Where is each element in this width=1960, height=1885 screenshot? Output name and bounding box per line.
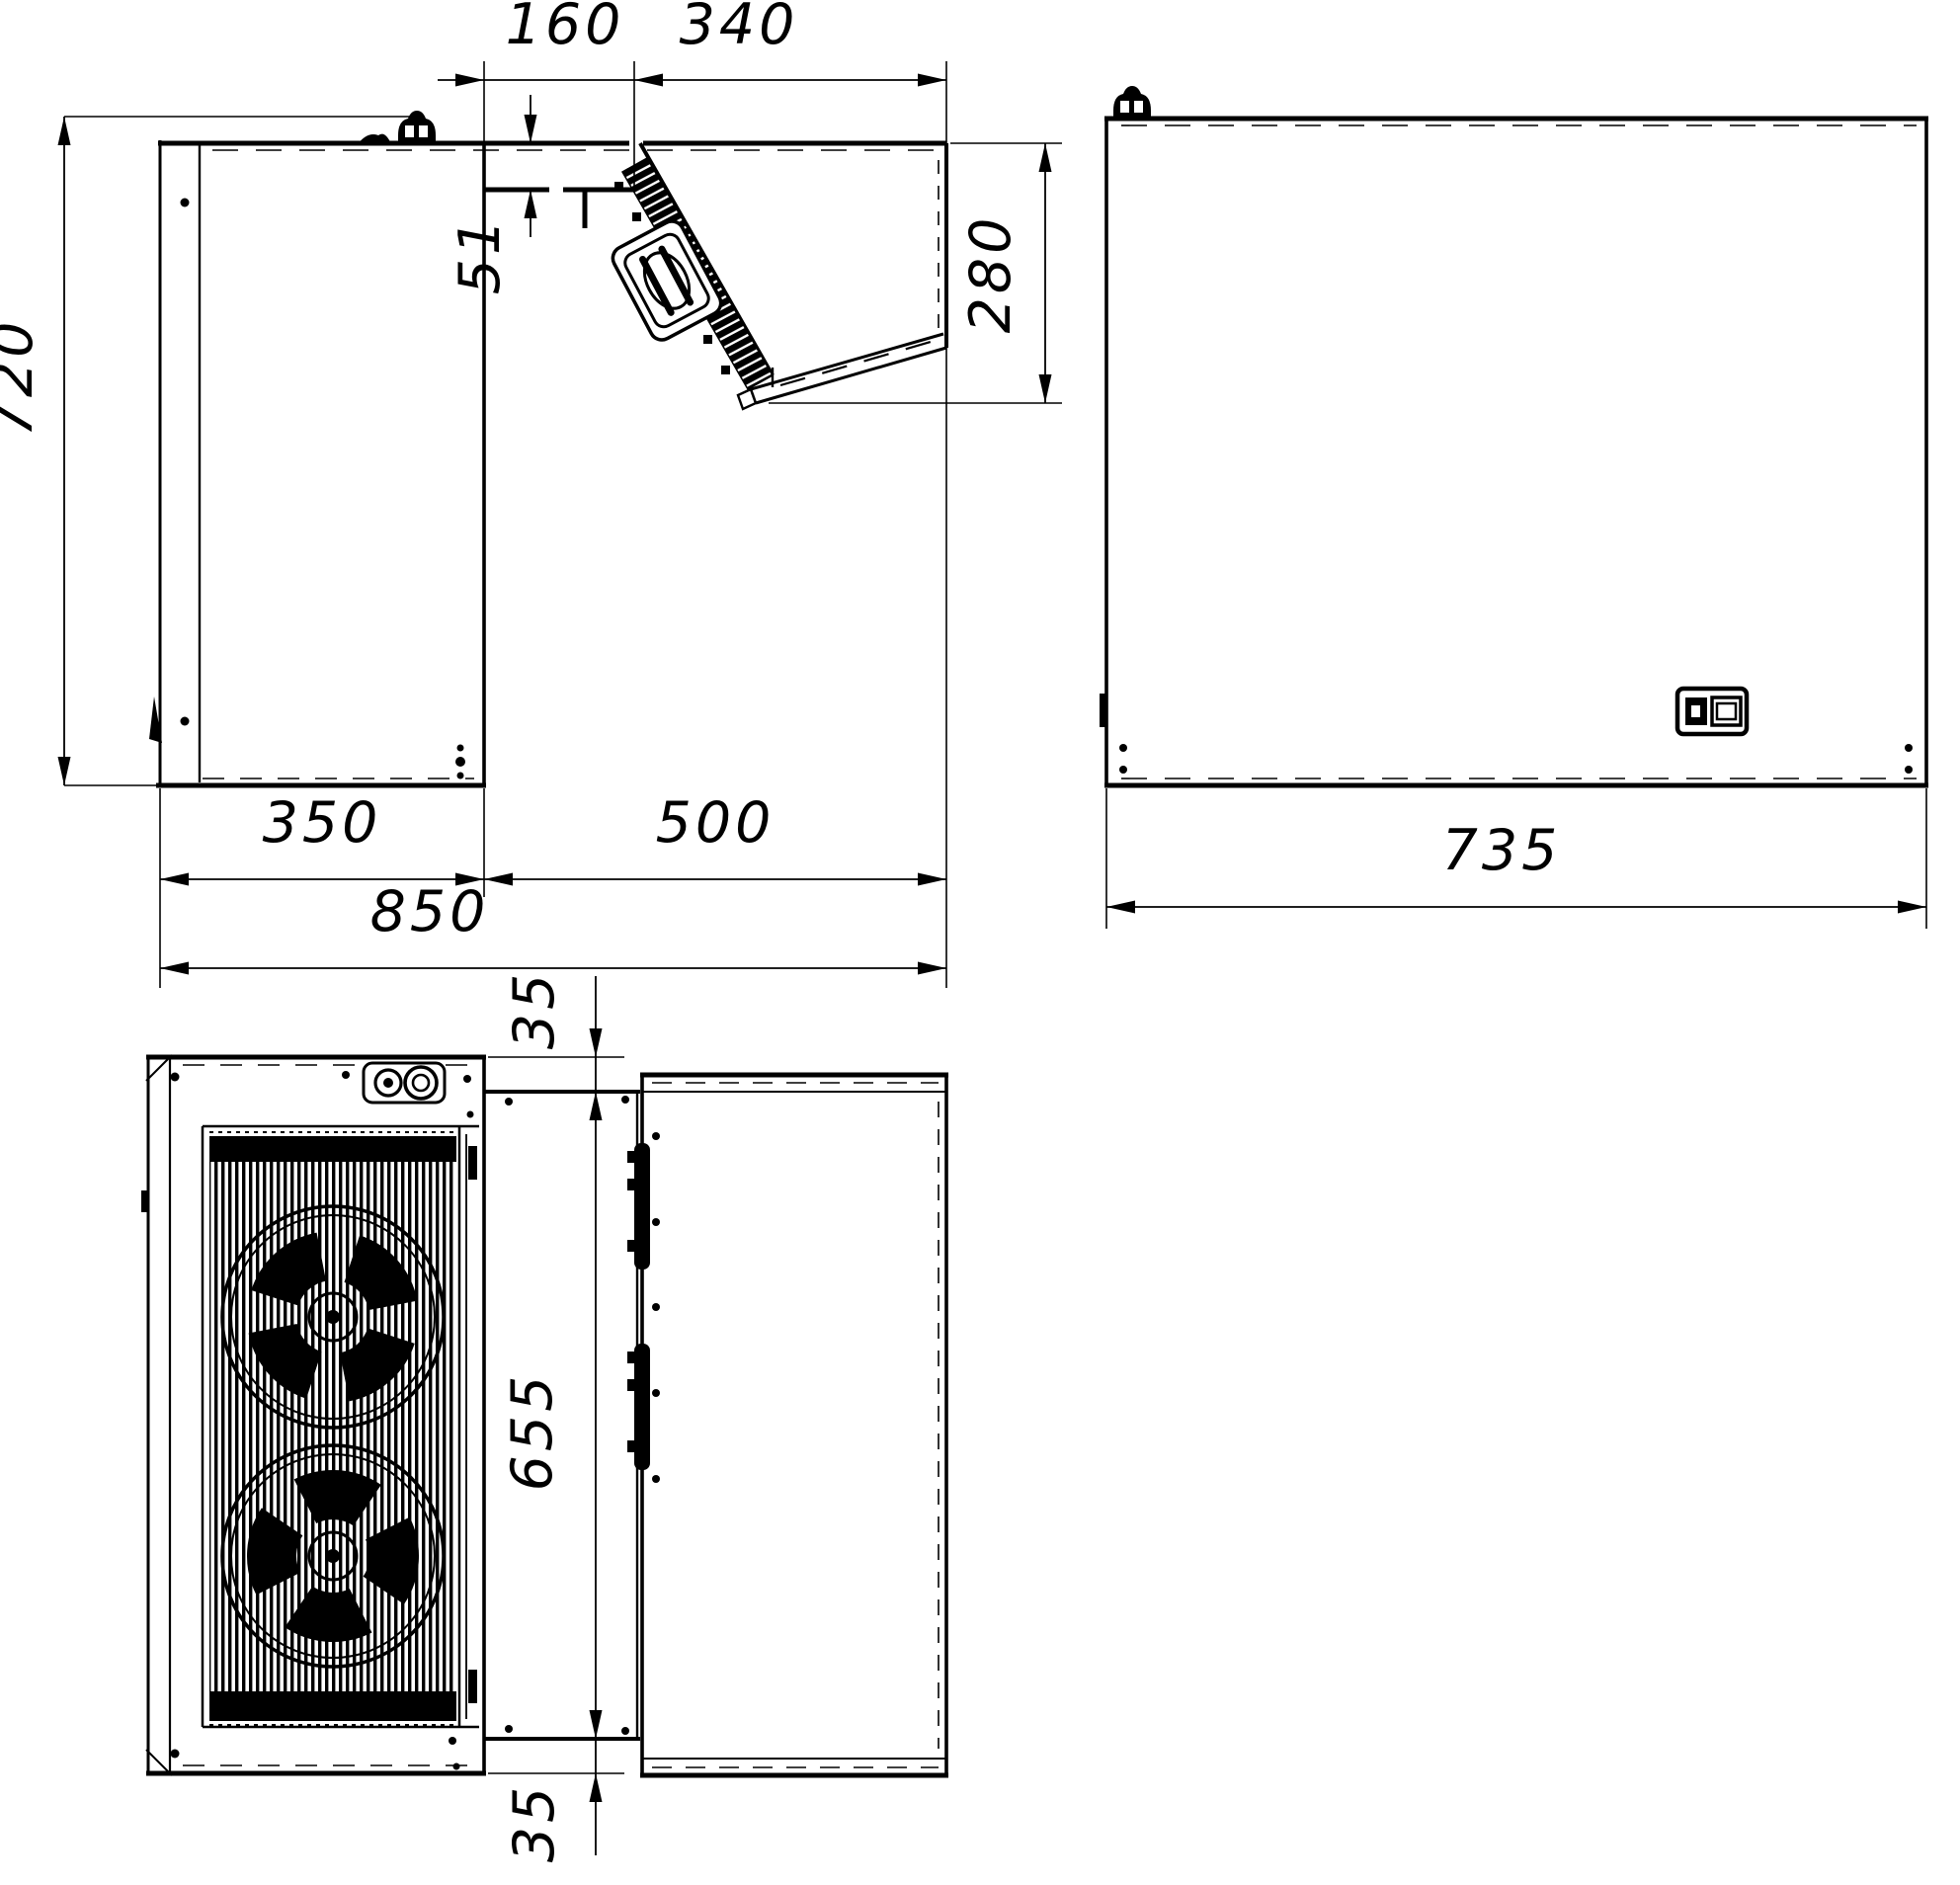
dim-indoor-340: 340	[634, 0, 946, 143]
rivet-dot	[652, 1132, 660, 1140]
screw-dot	[621, 1096, 629, 1104]
dim-label-735: 735	[1442, 818, 1562, 883]
hinge-tab	[627, 1143, 650, 1270]
rivet-dot	[652, 1475, 660, 1483]
service-valve-icon-front	[1113, 86, 1151, 120]
dim-label-340: 340	[680, 0, 799, 57]
screw-dot	[505, 1098, 513, 1106]
screw-dot	[455, 757, 465, 767]
drawing-sheet: 720	[0, 0, 1960, 1885]
controller-display	[1677, 689, 1747, 734]
screw-dot	[181, 717, 190, 726]
dim-recess-160: 160	[438, 0, 634, 190]
screw-dot	[457, 773, 464, 779]
front-screw-dots	[1119, 744, 1913, 774]
dim-height-720: 720	[0, 117, 415, 785]
screw-dot	[181, 199, 190, 207]
screw-dot	[467, 1111, 474, 1118]
dim-label-655: 655	[500, 1372, 565, 1492]
latch	[468, 1146, 477, 1180]
condenser-grille	[209, 1136, 456, 1721]
dim-label-350: 350	[263, 790, 382, 856]
dim-label-35-bottom: 35	[502, 1783, 567, 1863]
side-view: 720	[0, 0, 1062, 988]
evaporator-section	[609, 143, 946, 409]
dim-clearance-35-bottom: 35	[488, 1739, 624, 1862]
rivet-dot	[652, 1218, 660, 1226]
dim-label-51: 51	[448, 215, 513, 295]
drawing-canvas: 720	[0, 0, 1960, 1885]
latch	[468, 1670, 477, 1703]
fan-shroud-icon	[609, 217, 725, 344]
grommet-icon	[358, 134, 391, 144]
dim-label-280: 280	[958, 214, 1023, 334]
rivet-dot	[652, 1303, 660, 1311]
dim-width-735: 735	[1106, 788, 1926, 929]
screw-dot	[621, 1727, 629, 1735]
front-outline	[1100, 119, 1928, 785]
screw-dot	[342, 1071, 350, 1079]
plan-view: 35 655 35	[141, 970, 948, 1863]
edge-notch	[141, 1190, 149, 1212]
dim-opening-655: 655	[500, 1092, 603, 1739]
dim-plate-51: 51	[448, 95, 537, 294]
dim-clearance-35-top: 35	[488, 970, 624, 1092]
screw-dot	[463, 1075, 471, 1083]
condenser-fans	[209, 1132, 456, 1725]
cable-gland-icon	[364, 1063, 445, 1103]
dim-label-850: 850	[370, 879, 490, 944]
screw-dot	[171, 1750, 180, 1759]
screw-dot	[457, 745, 464, 752]
plan-indoor-box	[627, 1075, 948, 1775]
dim-label-160: 160	[506, 0, 625, 57]
outdoor-unit-outline	[149, 140, 946, 785]
hinge-tab	[627, 1344, 650, 1470]
screw-dot	[453, 1763, 460, 1770]
rivet-dot	[652, 1389, 660, 1397]
service-valve-icon	[358, 111, 436, 144]
dim-label-720: 720	[0, 318, 45, 438]
dim-label-500: 500	[656, 790, 776, 856]
edge-notch	[1100, 694, 1107, 727]
dim-span-500: 500	[484, 348, 946, 988]
dim-indoor-height-280: 280	[769, 143, 1062, 403]
screw-dot	[449, 1737, 456, 1745]
front-view: 735	[1100, 86, 1928, 929]
screw-dot	[171, 1073, 180, 1082]
screw-dot	[505, 1725, 513, 1733]
dim-total-850: 850	[160, 879, 946, 975]
dim-label-35-top: 35	[502, 970, 567, 1050]
